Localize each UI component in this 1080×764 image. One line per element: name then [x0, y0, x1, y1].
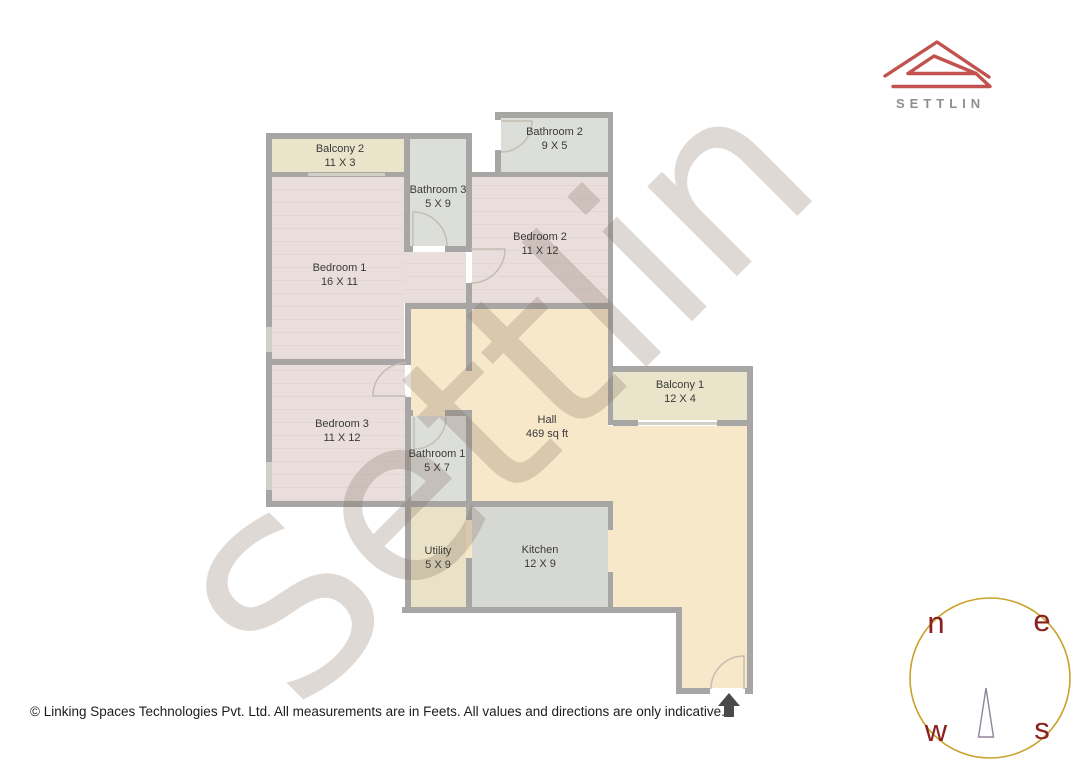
label-kitchen: Kitchen12 X 9 [478, 544, 602, 571]
wall-bathroom3-bottom-a [404, 246, 413, 252]
room-name: Utility [406, 545, 470, 559]
wall-outer-left [266, 133, 272, 507]
label-bedroom2: Bedroom 211 X 12 [475, 231, 605, 258]
room-name: Bathroom 3 [403, 184, 473, 198]
room-name: Bathroom 2 [497, 126, 612, 140]
wall-utility-kitchen-a [466, 507, 472, 520]
room-name: Balcony 1 [618, 379, 742, 393]
wall-east-spine [608, 112, 613, 425]
compass-e: e [1033, 603, 1050, 638]
wall-kitchen-top [472, 501, 613, 507]
room-hall-entry [682, 607, 747, 688]
wall-bed1-bed3 [272, 359, 411, 365]
wall-bathroom1-bottom [405, 501, 472, 507]
slider-balcony1 [638, 422, 717, 425]
wall-leftblock-bottom [266, 501, 411, 507]
wall-bathroom2-top [495, 112, 613, 118]
wall-bathroom2-bottom [466, 172, 613, 177]
floor-plan-page: Settlin Balcony 211 X 3 Bathroom 35 X 9 … [0, 0, 1080, 764]
label-balcony1: Balcony 112 X 4 [618, 379, 742, 406]
footer-disclaimer: © Linking Spaces Technologies Pvt. Ltd. … [30, 704, 725, 719]
wall-hall-top [405, 303, 613, 309]
room-size: 16 X 11 [277, 276, 402, 290]
wall-plan-bottom [402, 607, 682, 613]
room-name: Bedroom 3 [280, 418, 404, 432]
label-bathroom1: Bathroom 15 X 7 [403, 448, 471, 475]
room-size: 5 X 9 [406, 559, 470, 573]
window-bedroom1-west [266, 327, 272, 352]
label-bathroom2: Bathroom 29 X 5 [497, 126, 612, 153]
wall-bathroom2-left-b [495, 150, 501, 172]
room-name: Bathroom 1 [403, 448, 471, 462]
label-bedroom3: Bedroom 311 X 12 [280, 418, 404, 445]
room-size: 11 X 3 [278, 157, 402, 171]
label-utility: Utility5 X 9 [406, 545, 470, 572]
label-balcony2: Balcony 211 X 3 [278, 143, 402, 170]
room-size: 11 X 12 [475, 245, 605, 259]
compass-w: w [924, 713, 948, 748]
wall-outer-right [747, 366, 753, 694]
wall-foyer-stub [466, 309, 472, 371]
label-bedroom1: Bedroom 116 X 11 [277, 262, 402, 289]
wall-kitchen-right-b [608, 572, 613, 607]
wall-entry-bottom-b [745, 688, 753, 694]
room-size: 12 X 4 [618, 393, 742, 407]
wall-kitchen-right-a [608, 507, 613, 530]
compass-needle [979, 688, 994, 737]
settlin-logo-text: SETTLIN [896, 96, 1006, 111]
window-bedroom3-west [266, 462, 272, 490]
room-size: 469 sq ft [487, 428, 607, 442]
slider-balcony2 [308, 173, 385, 176]
room-name: Bedroom 1 [277, 262, 402, 276]
room-name: Balcony 2 [278, 143, 402, 157]
room-size: 5 X 9 [403, 198, 473, 212]
label-hall: Hall469 sq ft [487, 414, 607, 441]
compass-s: s [1034, 711, 1050, 746]
wall-balcony1-bottom-a [613, 420, 638, 426]
room-name: Bedroom 2 [475, 231, 605, 245]
room-size: 12 X 9 [478, 558, 602, 572]
wall-entry-left [676, 607, 682, 694]
room-name: Hall [487, 414, 607, 428]
compass-n: n [927, 605, 944, 640]
wall-outer-top [266, 133, 472, 139]
wall-balcony1-top [613, 366, 753, 372]
wall-bathroom1-top-a [405, 410, 413, 416]
room-size: 9 X 5 [497, 140, 612, 154]
label-bathroom3: Bathroom 35 X 9 [403, 184, 473, 211]
room-name: Kitchen [478, 544, 602, 558]
room-size: 11 X 12 [280, 432, 404, 446]
compass-rose: n e w s [895, 585, 1080, 764]
room-hall-east [608, 426, 747, 607]
wall-west-spine-a [405, 303, 411, 365]
room-bedroom1-ext [404, 252, 466, 303]
wall-bathroom2-left-a [495, 112, 501, 120]
room-size: 5 X 7 [403, 462, 471, 476]
